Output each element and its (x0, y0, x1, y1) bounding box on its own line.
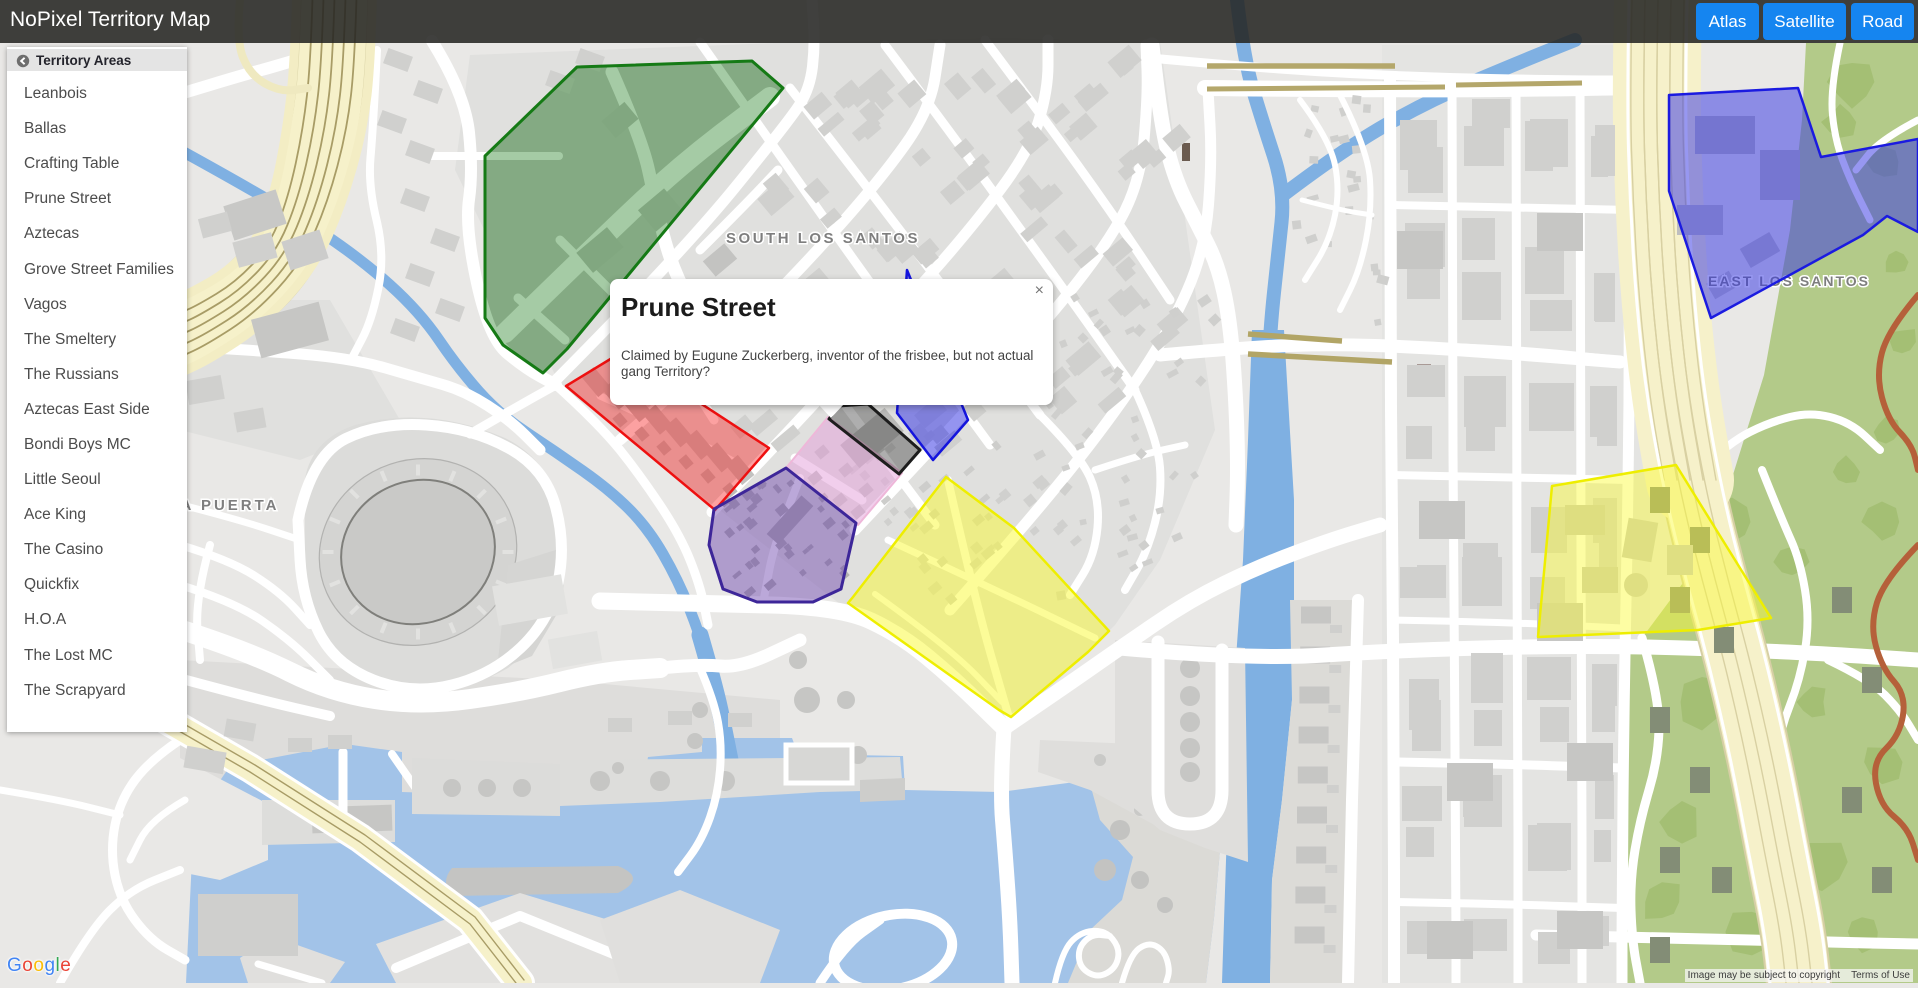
svg-text:A PUERTA: A PUERTA (181, 497, 280, 514)
svg-text:SOUTH LOS SANTOS: SOUTH LOS SANTOS (726, 230, 920, 247)
